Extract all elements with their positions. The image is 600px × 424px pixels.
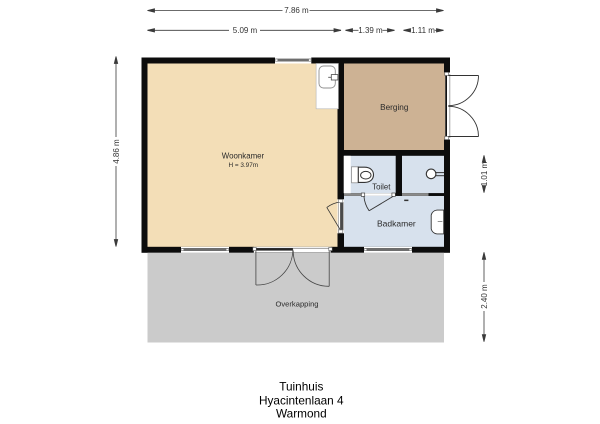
svg-text:Hyacintenlaan 4: Hyacintenlaan 4 — [259, 393, 344, 407]
svg-text:4.86 m: 4.86 m — [112, 139, 121, 164]
svg-text:7.86 m: 7.86 m — [284, 6, 309, 15]
svg-text:Tuinhuis: Tuinhuis — [279, 380, 323, 394]
svg-text:5.09 m: 5.09 m — [233, 26, 258, 35]
svg-text:Toilet: Toilet — [372, 182, 391, 191]
svg-text:1.01 m: 1.01 m — [480, 161, 489, 186]
svg-text:2.40 m: 2.40 m — [480, 284, 489, 309]
svg-text:Berging: Berging — [380, 103, 409, 112]
svg-text:Warmond: Warmond — [276, 406, 327, 420]
svg-text:Badkamer: Badkamer — [377, 218, 416, 228]
svg-text:H = 3.97m: H = 3.97m — [228, 162, 258, 169]
svg-text:1.11 m: 1.11 m — [411, 26, 435, 35]
svg-text:Woonkamer: Woonkamer — [222, 151, 265, 160]
svg-text:1.39 m: 1.39 m — [358, 26, 383, 35]
svg-text:Overkapping: Overkapping — [275, 299, 318, 308]
